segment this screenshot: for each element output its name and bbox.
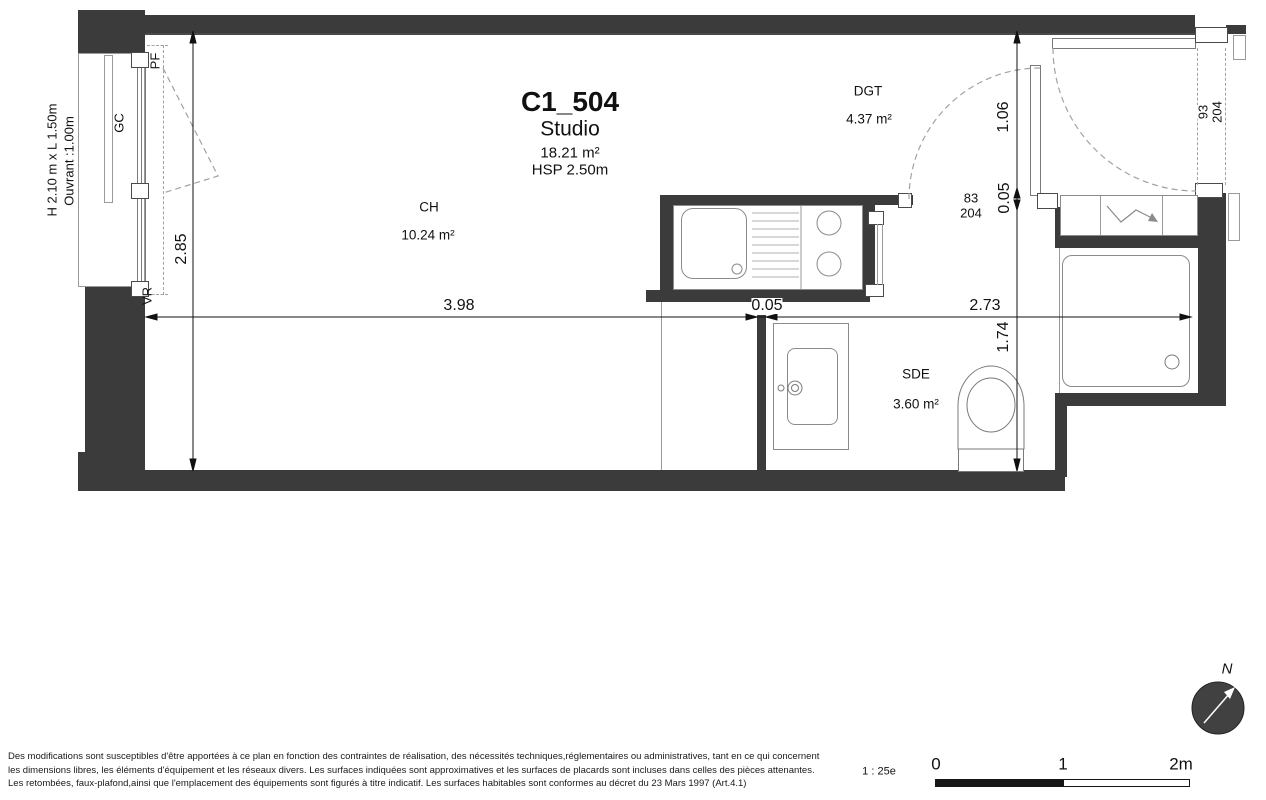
scale-bar-solid bbox=[935, 779, 1063, 787]
plan-title-type: Studio bbox=[540, 119, 600, 140]
scale-bar bbox=[935, 779, 1190, 787]
window-swing-lines bbox=[163, 68, 218, 193]
scale-tick-1: 1 bbox=[1058, 756, 1067, 773]
window-hinge-top bbox=[131, 52, 149, 68]
sde-door-leaf bbox=[1030, 65, 1041, 196]
kitchen-zone-line bbox=[661, 302, 662, 470]
room-dgt-area: 4.37 m² bbox=[846, 112, 892, 126]
window-size-label: H 2.10 m x L 1.50m bbox=[46, 104, 59, 217]
scale-bar-open bbox=[1064, 780, 1190, 787]
interior-door-leaf-line-1 bbox=[877, 224, 878, 285]
window-hinge-mid bbox=[131, 183, 149, 199]
dim-1-74: 1.74 bbox=[996, 321, 1012, 352]
disclaimer-text: Des modifications sont susceptibles d'êt… bbox=[8, 750, 819, 791]
dim-0-05-wall: 0.05 bbox=[751, 298, 782, 314]
window-pf-label: PF bbox=[149, 53, 162, 70]
scale-tick-0: 0 bbox=[931, 756, 940, 773]
closet-divider-2 bbox=[1162, 196, 1163, 235]
disclaimer-line-1: Des modifications sont susceptibles d'êt… bbox=[8, 750, 819, 764]
kitchen-sink bbox=[681, 208, 747, 279]
closet-divider-1 bbox=[1100, 196, 1101, 235]
entrance-door-leaf bbox=[1052, 38, 1196, 49]
sde-door-hinge-jamb bbox=[1037, 193, 1058, 209]
dim-2-85: 2.85 bbox=[174, 233, 190, 264]
kitchen-back-wall bbox=[660, 195, 913, 205]
shutter-vr-label: VR bbox=[141, 287, 154, 305]
top-wall-inner-line bbox=[145, 33, 1195, 35]
shower-bottom-wall bbox=[1055, 393, 1200, 406]
sde-right-lower-wall bbox=[1055, 393, 1067, 477]
window-frame-line-1 bbox=[137, 58, 138, 284]
dim-3-98: 3.98 bbox=[443, 298, 474, 314]
dim-1-06: 1.06 bbox=[996, 101, 1012, 132]
window-frame-line-3 bbox=[145, 58, 146, 284]
vanity-basin bbox=[787, 348, 838, 425]
scale-tick-2m: 2m bbox=[1169, 756, 1193, 773]
bottom-wall bbox=[113, 470, 1065, 491]
plan-title-area: 18.21 m² bbox=[540, 146, 599, 161]
window-frame-line-2 bbox=[141, 58, 142, 284]
room-dgt-code: DGT bbox=[854, 84, 883, 98]
entrance-door-width: 93 bbox=[1197, 105, 1210, 119]
entrance-jamb bbox=[1195, 27, 1228, 43]
dim-0-05-right: 0.05 bbox=[997, 182, 1013, 213]
left-lower-wall bbox=[85, 287, 145, 472]
partition-ch-sde bbox=[757, 315, 766, 473]
window-opening-label: Ouvrant :1.00m bbox=[63, 116, 76, 206]
toilet-tank bbox=[958, 448, 1024, 472]
north-compass bbox=[1192, 682, 1244, 734]
interior-door-height: 204 bbox=[960, 207, 982, 220]
window-swing-dash-top bbox=[147, 45, 168, 46]
room-ch-area: 10.24 m² bbox=[401, 228, 454, 242]
compass-needle bbox=[1204, 693, 1230, 723]
compass-north-label: N bbox=[1222, 662, 1233, 677]
right-outer-wall bbox=[1198, 193, 1226, 406]
sde-door-arc bbox=[909, 68, 1040, 199]
entrance-frame-strip bbox=[1233, 35, 1246, 60]
interior-door-hinge-top bbox=[868, 211, 884, 225]
disclaimer-line-3: Les retombées, faux-plafond,ainsi que l'… bbox=[8, 777, 819, 791]
top-wall bbox=[85, 15, 1195, 33]
sde-door-strike-jamb bbox=[898, 193, 912, 208]
interior-door-hinge-bottom bbox=[865, 284, 884, 297]
right-wall-outer-strip bbox=[1228, 193, 1240, 241]
entry-closet bbox=[1060, 195, 1198, 236]
room-sde-area: 3.60 m² bbox=[893, 397, 939, 411]
plan-title-unit: C1_504 bbox=[521, 88, 619, 116]
compass-needle-tip bbox=[1224, 687, 1235, 699]
toilet-bowl bbox=[958, 366, 1024, 449]
bottom-left-corner-wall bbox=[78, 452, 113, 491]
plan-title-ceiling: HSP 2.50m bbox=[532, 163, 608, 178]
right-wall-top-jamb bbox=[1195, 183, 1223, 198]
dim-2-73: 2.73 bbox=[969, 298, 1000, 314]
room-sde-code: SDE bbox=[902, 367, 930, 381]
window-swing-dash-vertical bbox=[163, 45, 164, 295]
disclaimer-line-2: les dimensions libres, les éléments d'éq… bbox=[8, 764, 819, 778]
guardrail-label: GC bbox=[113, 113, 126, 133]
closet-bottom-wall bbox=[1055, 235, 1198, 248]
shower-tray bbox=[1062, 255, 1190, 387]
interior-door-leaf-line-2 bbox=[882, 224, 883, 285]
entrance-door-arc bbox=[1053, 48, 1196, 191]
top-left-corner-wall bbox=[78, 10, 145, 53]
entrance-door-height: 204 bbox=[1211, 101, 1224, 123]
room-ch-code: CH bbox=[419, 200, 439, 214]
scale-ratio: 1 : 25e bbox=[862, 767, 896, 778]
top-right-wall-stub bbox=[1226, 25, 1246, 34]
shower-enclosure-line bbox=[1059, 248, 1060, 393]
kitchen-left-wall bbox=[660, 195, 673, 302]
compass-circle bbox=[1192, 682, 1244, 734]
toilet-seat bbox=[967, 378, 1015, 432]
door-swing-arcs bbox=[163, 48, 1196, 199]
interior-door-width: 83 bbox=[964, 192, 978, 205]
floor-plan: C1_504 Studio 18.21 m² HSP 2.50m CH 10.2… bbox=[0, 0, 1266, 800]
entrance-opening-dash-right bbox=[1225, 48, 1226, 185]
